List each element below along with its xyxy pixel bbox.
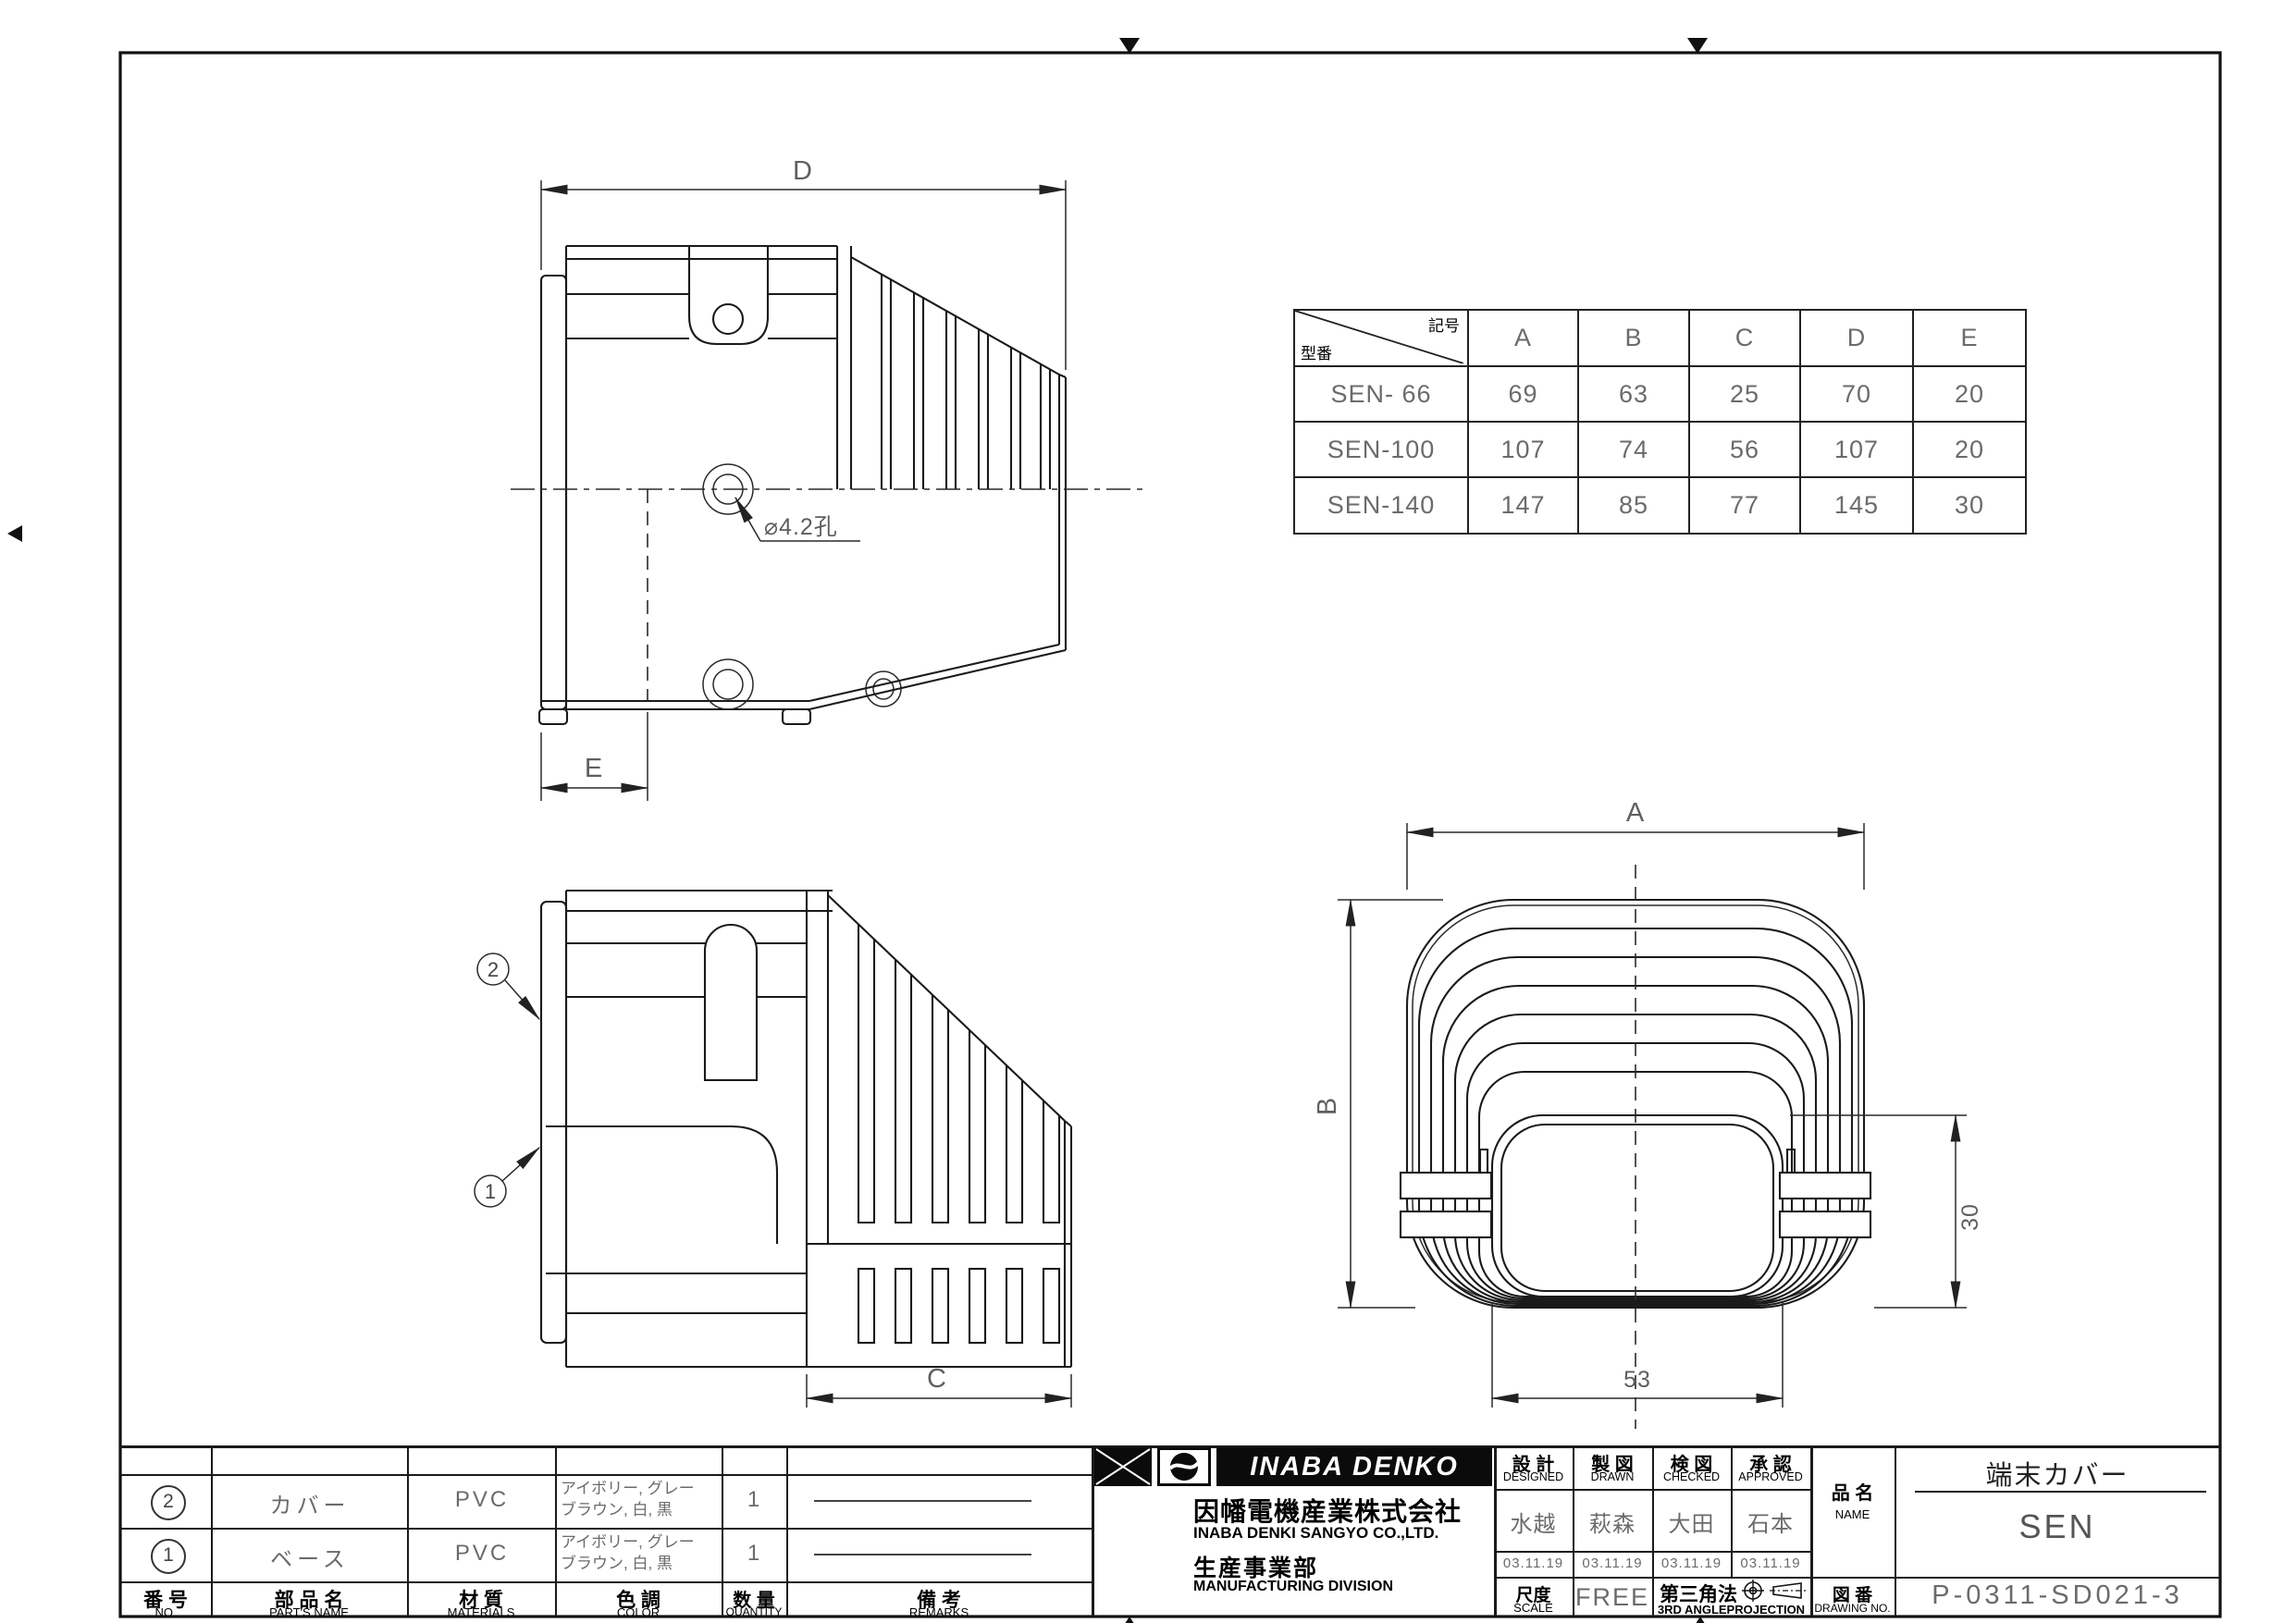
- dim-label-53: 53: [1623, 1367, 1651, 1393]
- approval-date: 03.11.19: [1573, 1555, 1652, 1571]
- part-qty: 1: [723, 1541, 784, 1567]
- hdr-name-en: PART'S NAME: [211, 1605, 407, 1619]
- size-col-b: B: [1578, 310, 1689, 366]
- drawing-no-label-en: DRAWING NO.: [1810, 1602, 1895, 1615]
- value-cell: 25: [1689, 366, 1800, 422]
- dim-label-e: E: [585, 754, 603, 783]
- size-col-e: E: [1913, 310, 2026, 366]
- value-cell: 77: [1689, 477, 1800, 534]
- left-center-mark: [7, 525, 22, 542]
- approval-name: 大田: [1652, 1506, 1731, 1538]
- approval-date: 03.11.19: [1494, 1555, 1573, 1571]
- size-table-corner-model: 型番: [1301, 340, 1332, 363]
- size-col-a: A: [1468, 310, 1578, 366]
- part-qty: 1: [723, 1487, 784, 1513]
- hdr-no-en: NO.: [120, 1605, 211, 1619]
- value-cell: 20: [1913, 422, 2026, 477]
- value-cell: 107: [1800, 422, 1913, 477]
- hdr-color-en: COLOR: [555, 1605, 722, 1619]
- parts-balloon-2: 2: [151, 1485, 186, 1520]
- size-table-corner-cell: 記号 型番: [1294, 310, 1468, 366]
- part-name: ベース: [213, 1541, 407, 1573]
- dim-label-30: 30: [1957, 1203, 1983, 1231]
- balloon-2: 2: [488, 958, 499, 981]
- part-color: アイボリー, グレー ブラウン, 白, 黒: [561, 1532, 720, 1575]
- value-cell: 147: [1468, 477, 1578, 534]
- approval-label-en: DESIGNED: [1494, 1470, 1573, 1483]
- approval-date: 03.11.19: [1731, 1555, 1810, 1571]
- name-label-en: NAME: [1810, 1507, 1895, 1521]
- hdr-remarks-en: REMARKS: [786, 1605, 1092, 1619]
- value-cell: 30: [1913, 477, 2026, 534]
- parts-balloon-1: 1: [151, 1539, 186, 1574]
- product-name: SEN: [1895, 1507, 2220, 1546]
- approval-name: 石本: [1731, 1506, 1810, 1538]
- company-logo-icon: [1157, 1447, 1211, 1486]
- dim-label-c: C: [927, 1364, 947, 1394]
- dim-label-b: B: [1313, 1097, 1342, 1115]
- size-table-corner-symbol: 記号: [1428, 313, 1460, 336]
- value-cell: 107: [1468, 422, 1578, 477]
- size-row-sen66: SEN- 66 69 63 25 70 20: [1294, 366, 2026, 422]
- cad-line-art: D: [0, 0, 2296, 1623]
- model-name: SEN-140: [1294, 477, 1468, 534]
- value-cell: 74: [1578, 422, 1689, 477]
- size-col-c: C: [1689, 310, 1800, 366]
- approval-name: 萩森: [1573, 1506, 1652, 1538]
- part-name: カバー: [213, 1487, 407, 1519]
- value-cell: 69: [1468, 366, 1578, 422]
- logo-hatch-square: [1094, 1447, 1152, 1486]
- value-cell: 145: [1800, 477, 1913, 534]
- approval-date: 03.11.19: [1652, 1555, 1731, 1571]
- value-cell: 85: [1578, 477, 1689, 534]
- third-angle-projection-icon: [1742, 1580, 1808, 1602]
- hole-callout: ⌀4.2孔: [764, 514, 838, 540]
- view-side-bottom: 2 1 C: [475, 891, 1071, 1408]
- hdr-qty-en: QUANTITY: [722, 1605, 786, 1618]
- remarks-dash: [814, 1500, 1031, 1502]
- size-col-d: D: [1800, 310, 1913, 366]
- company-division-en: MANUFACTURING DIVISION: [1193, 1579, 1393, 1595]
- approval-label-en: CHECKED: [1652, 1470, 1731, 1483]
- value-cell: 63: [1578, 366, 1689, 422]
- name-label-jp: 品 名: [1810, 1478, 1895, 1505]
- approval-label-en: APPROVED: [1731, 1470, 1810, 1483]
- model-name: SEN-100: [1294, 422, 1468, 477]
- sheet-border: [120, 53, 2220, 1617]
- dim-label-d: D: [793, 156, 813, 186]
- value-cell: 56: [1689, 422, 1800, 477]
- part-material: PVC: [409, 1487, 555, 1513]
- remarks-dash: [814, 1554, 1031, 1555]
- company-name-en: INABA DENKI SANGYO CO.,LTD.: [1193, 1524, 1438, 1543]
- approval-label-en: DRAWN: [1573, 1470, 1652, 1483]
- company-name-jp: 因幡電機産業株式会社: [1193, 1492, 1462, 1529]
- size-row-sen140: SEN-140 147 85 77 145 30: [1294, 477, 2026, 534]
- part-material: PVC: [409, 1541, 555, 1567]
- value-cell: 70: [1800, 366, 1913, 422]
- company-logo-text: INABA DENKO: [1216, 1447, 1492, 1486]
- view-side-top: D: [511, 156, 1142, 801]
- balloon-1: 1: [485, 1180, 496, 1203]
- value-cell: 20: [1913, 366, 2026, 422]
- drawing-number: P-0311-SD021-3: [1895, 1580, 2220, 1611]
- size-table: 記号 型番 A B C D E SEN- 66 69 63 25 70 20 S…: [1293, 309, 2027, 535]
- size-row-sen100: SEN-100 107 74 56 107 20: [1294, 422, 2026, 477]
- hdr-material-en: MATERIALS: [407, 1605, 555, 1619]
- projection-label-en: 3RD ANGLEPROJECTION: [1652, 1603, 1810, 1617]
- approval-name: 水越: [1494, 1506, 1573, 1538]
- scale-label-en: SCALE: [1494, 1601, 1573, 1615]
- dim-label-a: A: [1626, 798, 1645, 828]
- scale-value: FREE: [1573, 1583, 1652, 1612]
- drawing-sheet: D: [0, 0, 2296, 1623]
- model-name: SEN- 66: [1294, 366, 1468, 422]
- part-color: アイボリー, グレー ブラウン, 白, 黒: [561, 1479, 720, 1521]
- product-title: 端末カバー: [1895, 1454, 2220, 1493]
- view-front: A B 30 53: [1313, 798, 1983, 1429]
